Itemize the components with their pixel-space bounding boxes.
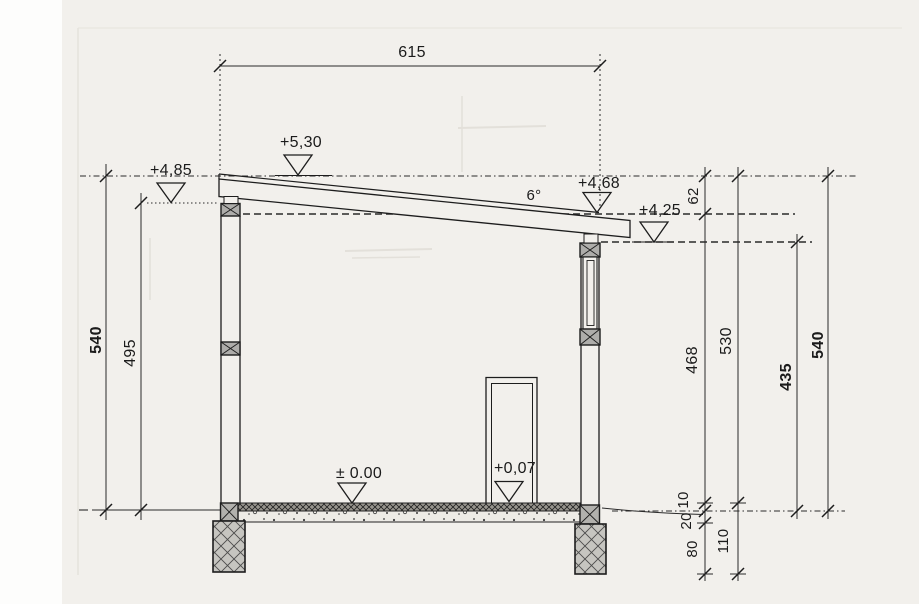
level-marker-468: +4,68 — [571, 175, 627, 193]
level-marker-007: +0,07 — [487, 460, 543, 478]
dim-right-435: 435 — [778, 349, 796, 405]
level-marker-530: +5,30 — [273, 134, 329, 152]
dim-left-540: 540 — [88, 312, 106, 368]
dim-right-468: 468 — [684, 332, 702, 388]
level-marker-000: ± 0.00 — [324, 465, 394, 483]
dim-top-width: 615 — [384, 44, 440, 62]
scanned-section-drawing: 615 540 495 62 468 530 435 540 10 20 80 … — [0, 0, 919, 604]
window-section — [583, 257, 597, 329]
dim-bottom-110: 110 — [715, 513, 733, 569]
floor-slab — [238, 503, 580, 522]
dim-bottom-80: 80 — [684, 521, 702, 577]
section-drawing-canvas — [0, 0, 919, 604]
dim-right-530: 530 — [718, 313, 736, 369]
dim-left-495: 495 — [122, 325, 140, 381]
dim-right-540: 540 — [810, 317, 828, 373]
level-marker-485: +4,85 — [143, 162, 199, 180]
roof-angle-label: 6° — [520, 187, 548, 205]
level-marker-425: +4,25 — [632, 202, 688, 220]
